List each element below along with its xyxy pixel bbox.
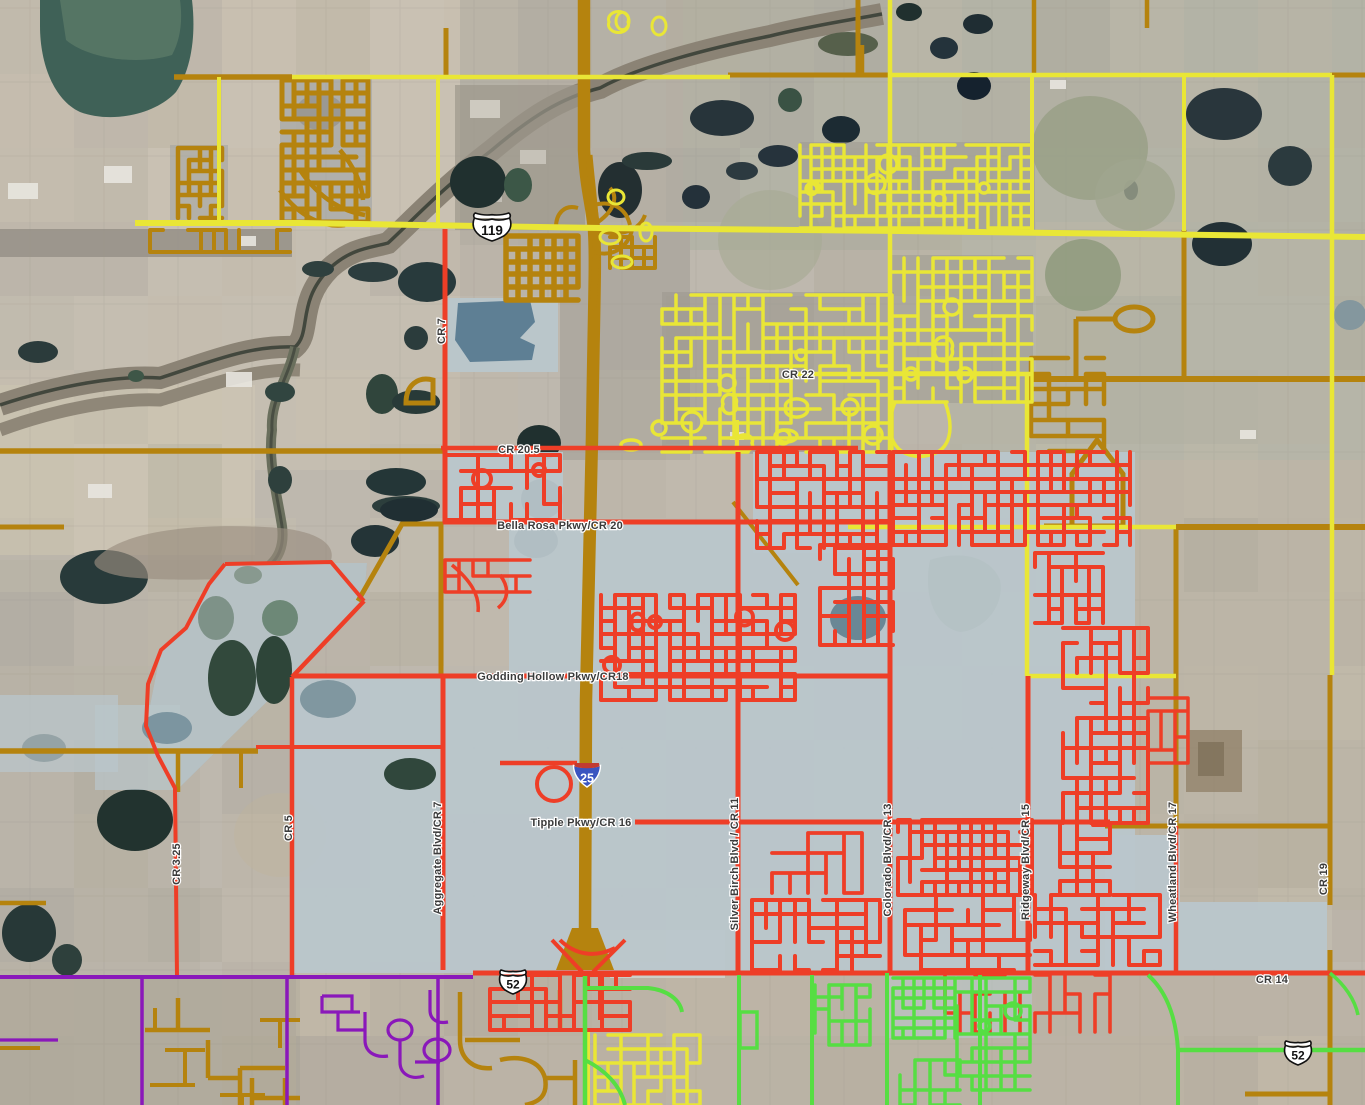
svg-text:119: 119: [481, 223, 503, 238]
svg-text:CR 7: CR 7: [436, 318, 448, 344]
svg-text:CR 22: CR 22: [782, 369, 814, 381]
svg-text:Silver Birch Blvd / CR 11: Silver Birch Blvd / CR 11: [729, 798, 741, 931]
svg-text:Aggregate Blvd/CR 7: Aggregate Blvd/CR 7: [432, 801, 444, 914]
svg-text:52: 52: [506, 978, 520, 992]
svg-text:Bella Rosa Pkwy/CR 20: Bella Rosa Pkwy/CR 20: [497, 520, 623, 532]
svg-text:Wheatland Blvd/CR 17: Wheatland Blvd/CR 17: [1167, 802, 1179, 923]
svg-text:Godding Hollow Pkwy/CR18: Godding Hollow Pkwy/CR18: [477, 671, 628, 683]
svg-text:CR 5: CR 5: [283, 815, 295, 841]
svg-text:CR 20.5: CR 20.5: [498, 444, 540, 456]
svg-text:Ridgeway Blvd/CR 15: Ridgeway Blvd/CR 15: [1020, 804, 1032, 920]
svg-text:CR 14: CR 14: [1256, 974, 1289, 986]
svg-text:Colorado Blvd/CR 13: Colorado Blvd/CR 13: [882, 803, 894, 916]
svg-text:52: 52: [1291, 1049, 1305, 1063]
svg-text:25: 25: [580, 772, 594, 786]
svg-text:CR 19: CR 19: [1318, 863, 1330, 895]
svg-text:Tipple Pkwy/CR 16: Tipple Pkwy/CR 16: [530, 817, 631, 829]
svg-text:CR 3.25: CR 3.25: [171, 843, 183, 885]
